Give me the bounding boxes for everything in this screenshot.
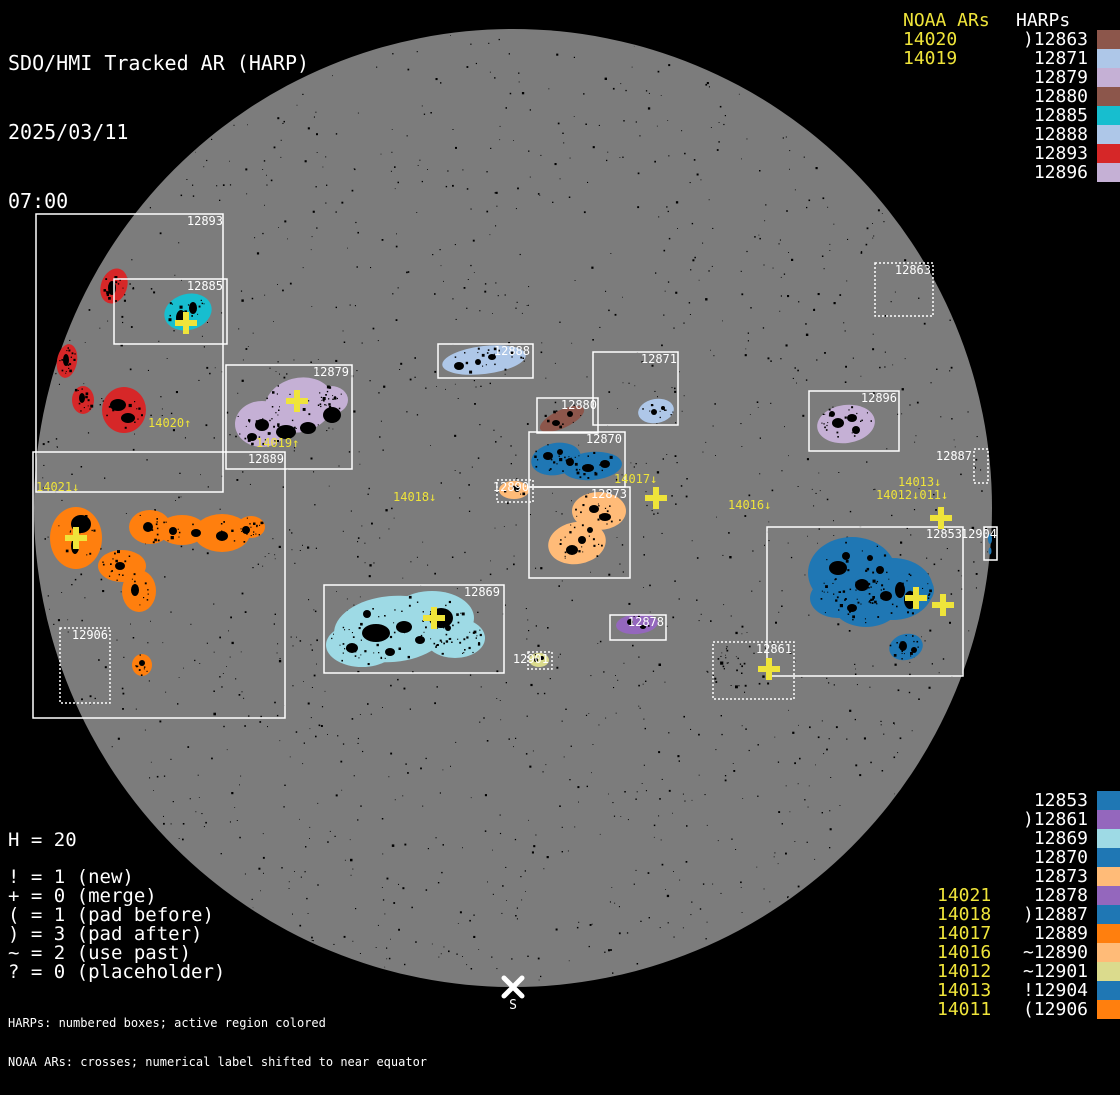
ar-list-row: 12869 bbox=[937, 829, 1120, 848]
noaa-map-label: 14018↓ bbox=[393, 490, 436, 504]
noaa-ar-number bbox=[937, 810, 997, 829]
legend-line: ? = 0 (placeholder) bbox=[8, 963, 225, 982]
ar-list-row: 14018)12887 bbox=[937, 905, 1120, 924]
noaa-ar-number: 14013 bbox=[937, 981, 997, 1000]
south-pole-label: S bbox=[509, 998, 517, 1013]
ar-list-row: 12885 bbox=[903, 106, 1120, 125]
noaa-ar-number bbox=[937, 791, 997, 810]
color-swatch bbox=[1097, 791, 1120, 810]
noaa-ar-number bbox=[903, 87, 963, 106]
noaa-ar-number: 14017 bbox=[937, 924, 997, 943]
harp-number: 12880 bbox=[963, 87, 1088, 106]
color-swatch bbox=[1097, 106, 1120, 125]
color-swatch bbox=[1097, 1000, 1120, 1019]
harp-box-label-12871: 12871 bbox=[641, 352, 677, 366]
harps-header: HARPs bbox=[1016, 11, 1070, 30]
harp-number: 12893 bbox=[963, 144, 1088, 163]
noaa-ars-header: NOAA ARs bbox=[903, 11, 990, 30]
harp-list-top: 14020)1286314019128711287912880128851288… bbox=[903, 30, 1120, 182]
ar-list-row: 1401712889 bbox=[937, 924, 1120, 943]
ar-list-row: 12853 bbox=[937, 791, 1120, 810]
color-swatch bbox=[1097, 848, 1120, 867]
active-region-blob bbox=[102, 387, 146, 433]
harp-box-label-12888: 12888 bbox=[494, 344, 530, 358]
harp-number: ~12901 bbox=[997, 962, 1088, 981]
color-swatch bbox=[1097, 962, 1120, 981]
color-swatch bbox=[1097, 810, 1120, 829]
harp-number: )12887 bbox=[997, 905, 1088, 924]
harp-number: )12861 bbox=[997, 810, 1088, 829]
harp-number: 12885 bbox=[963, 106, 1088, 125]
noaa-map-label: 14019↑ bbox=[256, 436, 299, 450]
harp-box-label-12906: 12906 bbox=[72, 628, 108, 642]
color-swatch bbox=[1097, 30, 1120, 49]
harp-number: 12871 bbox=[963, 49, 1088, 68]
harp-box-label-12889: 12889 bbox=[248, 452, 284, 466]
noaa-map-label: 14013↓ bbox=[898, 475, 941, 489]
noaa-map-label: 14016↓ bbox=[728, 498, 771, 512]
harp-number: 12853 bbox=[997, 791, 1088, 810]
harp-box-label-12890: 12890 bbox=[493, 480, 529, 494]
noaa-ar-number bbox=[903, 163, 963, 182]
noaa-ar-number: 14012 bbox=[937, 962, 997, 981]
time-label: 07:00 bbox=[8, 190, 309, 213]
noaa-ar-number: 14021 bbox=[937, 886, 997, 905]
harp-number: )12863 bbox=[963, 30, 1088, 49]
page-title: SDO/HMI Tracked AR (HARP) bbox=[8, 52, 309, 75]
noaa-ar-number bbox=[937, 829, 997, 848]
ar-list-row: 1402112878 bbox=[937, 886, 1120, 905]
noaa-ar-number: 14019 bbox=[903, 49, 963, 68]
ar-list-row: 12870 bbox=[937, 848, 1120, 867]
noaa-map-label: 14021↓ bbox=[36, 480, 79, 494]
color-swatch bbox=[1097, 981, 1120, 1000]
harp-box-label-12873: 12873 bbox=[591, 487, 627, 501]
ar-list-row: 14013!12904 bbox=[937, 981, 1120, 1000]
color-swatch bbox=[1097, 924, 1120, 943]
harp-number: 12870 bbox=[997, 848, 1088, 867]
active-region-blob bbox=[989, 548, 992, 555]
noaa-ar-number: 14011 bbox=[937, 1000, 997, 1019]
ar-list-row: 14011(12906 bbox=[937, 1000, 1120, 1019]
harp-box-label-12904: 12904 bbox=[961, 527, 997, 541]
date-label: 2025/03/11 bbox=[8, 121, 309, 144]
noaa-map-label: 14017↓ bbox=[614, 472, 657, 486]
footnotes: HARPs: numbered boxes; active region col… bbox=[8, 991, 427, 1095]
color-swatch bbox=[1097, 49, 1120, 68]
color-swatch bbox=[1097, 125, 1120, 144]
harp-number: 12888 bbox=[963, 125, 1088, 144]
ar-list-row: 12896 bbox=[903, 163, 1120, 182]
harp-box-label-12869: 12869 bbox=[464, 585, 500, 599]
harp-box-label-12861: 12861 bbox=[756, 642, 792, 656]
noaa-ar-number: 14016 bbox=[937, 943, 997, 962]
symbol-legend: ! = 1 (new)+ = 0 (merge)( = 1 (pad befor… bbox=[8, 868, 225, 982]
harp-box-label-12870: 12870 bbox=[586, 432, 622, 446]
ar-list-row: 14020)12863 bbox=[903, 30, 1120, 49]
color-swatch bbox=[1097, 905, 1120, 924]
harp-box-label-12879: 12879 bbox=[313, 365, 349, 379]
noaa-ar-number bbox=[937, 848, 997, 867]
ar-list-row: 1401912871 bbox=[903, 49, 1120, 68]
harp-box-label-12863: 12863 bbox=[895, 263, 931, 277]
harp-number: 12878 bbox=[997, 886, 1088, 905]
harp-box-label-12887: 12887 bbox=[936, 449, 972, 463]
noaa-ar-number bbox=[903, 125, 963, 144]
noaa-ar-number bbox=[903, 106, 963, 125]
color-swatch bbox=[1097, 867, 1120, 886]
ar-list-row: 12879 bbox=[903, 68, 1120, 87]
harp-number: 12869 bbox=[997, 829, 1088, 848]
noaa-map-label: 14020↑ bbox=[148, 416, 191, 430]
harp-number: ~12890 bbox=[997, 943, 1088, 962]
noaa-map-label: 14012↓011↓ bbox=[876, 488, 948, 502]
noaa-ar-number bbox=[903, 144, 963, 163]
footnote-noaa: NOAA ARs: crosses; numerical label shift… bbox=[8, 1056, 427, 1069]
harp-box-label-12878: 12878 bbox=[628, 615, 664, 629]
active-region-blob bbox=[122, 570, 156, 612]
harp-number: 12896 bbox=[963, 163, 1088, 182]
harp-list-bottom: 12853)1286112869128701287314021128781401… bbox=[937, 791, 1120, 1019]
harp-box-label-12880: 12880 bbox=[561, 398, 597, 412]
harp-count: H = 20 bbox=[8, 831, 77, 850]
harp-number: 12879 bbox=[963, 68, 1088, 87]
color-swatch bbox=[1097, 829, 1120, 848]
harp-box-label-12901: 12901 bbox=[513, 652, 549, 666]
color-swatch bbox=[1097, 163, 1120, 182]
harp-box-label-12853: 12853 bbox=[926, 527, 962, 541]
harp-tracker-screen: 1289312885128791288912906128881287112880… bbox=[0, 0, 1120, 1024]
harp-number: 12889 bbox=[997, 924, 1088, 943]
title-block: SDO/HMI Tracked AR (HARP) 2025/03/11 07:… bbox=[8, 6, 309, 259]
ar-list-row: 14012~12901 bbox=[937, 962, 1120, 981]
harp-number: 12873 bbox=[997, 867, 1088, 886]
noaa-ar-number bbox=[903, 68, 963, 87]
color-swatch bbox=[1097, 68, 1120, 87]
ar-list-row: 12873 bbox=[937, 867, 1120, 886]
noaa-ar-number bbox=[937, 867, 997, 886]
ar-list-row: 12888 bbox=[903, 125, 1120, 144]
color-swatch bbox=[1097, 886, 1120, 905]
harp-number: !12904 bbox=[997, 981, 1088, 1000]
color-swatch bbox=[1097, 144, 1120, 163]
ar-list-row: 14016~12890 bbox=[937, 943, 1120, 962]
harp-number: (12906 bbox=[997, 1000, 1088, 1019]
color-swatch bbox=[1097, 87, 1120, 106]
color-swatch bbox=[1097, 943, 1120, 962]
ar-list-row: 12893 bbox=[903, 144, 1120, 163]
ar-list-row: 12880 bbox=[903, 87, 1120, 106]
noaa-ar-number: 14018 bbox=[937, 905, 997, 924]
harp-box-label-12885: 12885 bbox=[187, 279, 223, 293]
noaa-ar-number: 14020 bbox=[903, 30, 963, 49]
harp-box-label-12896: 12896 bbox=[861, 391, 897, 405]
ar-list-row: )12861 bbox=[937, 810, 1120, 829]
